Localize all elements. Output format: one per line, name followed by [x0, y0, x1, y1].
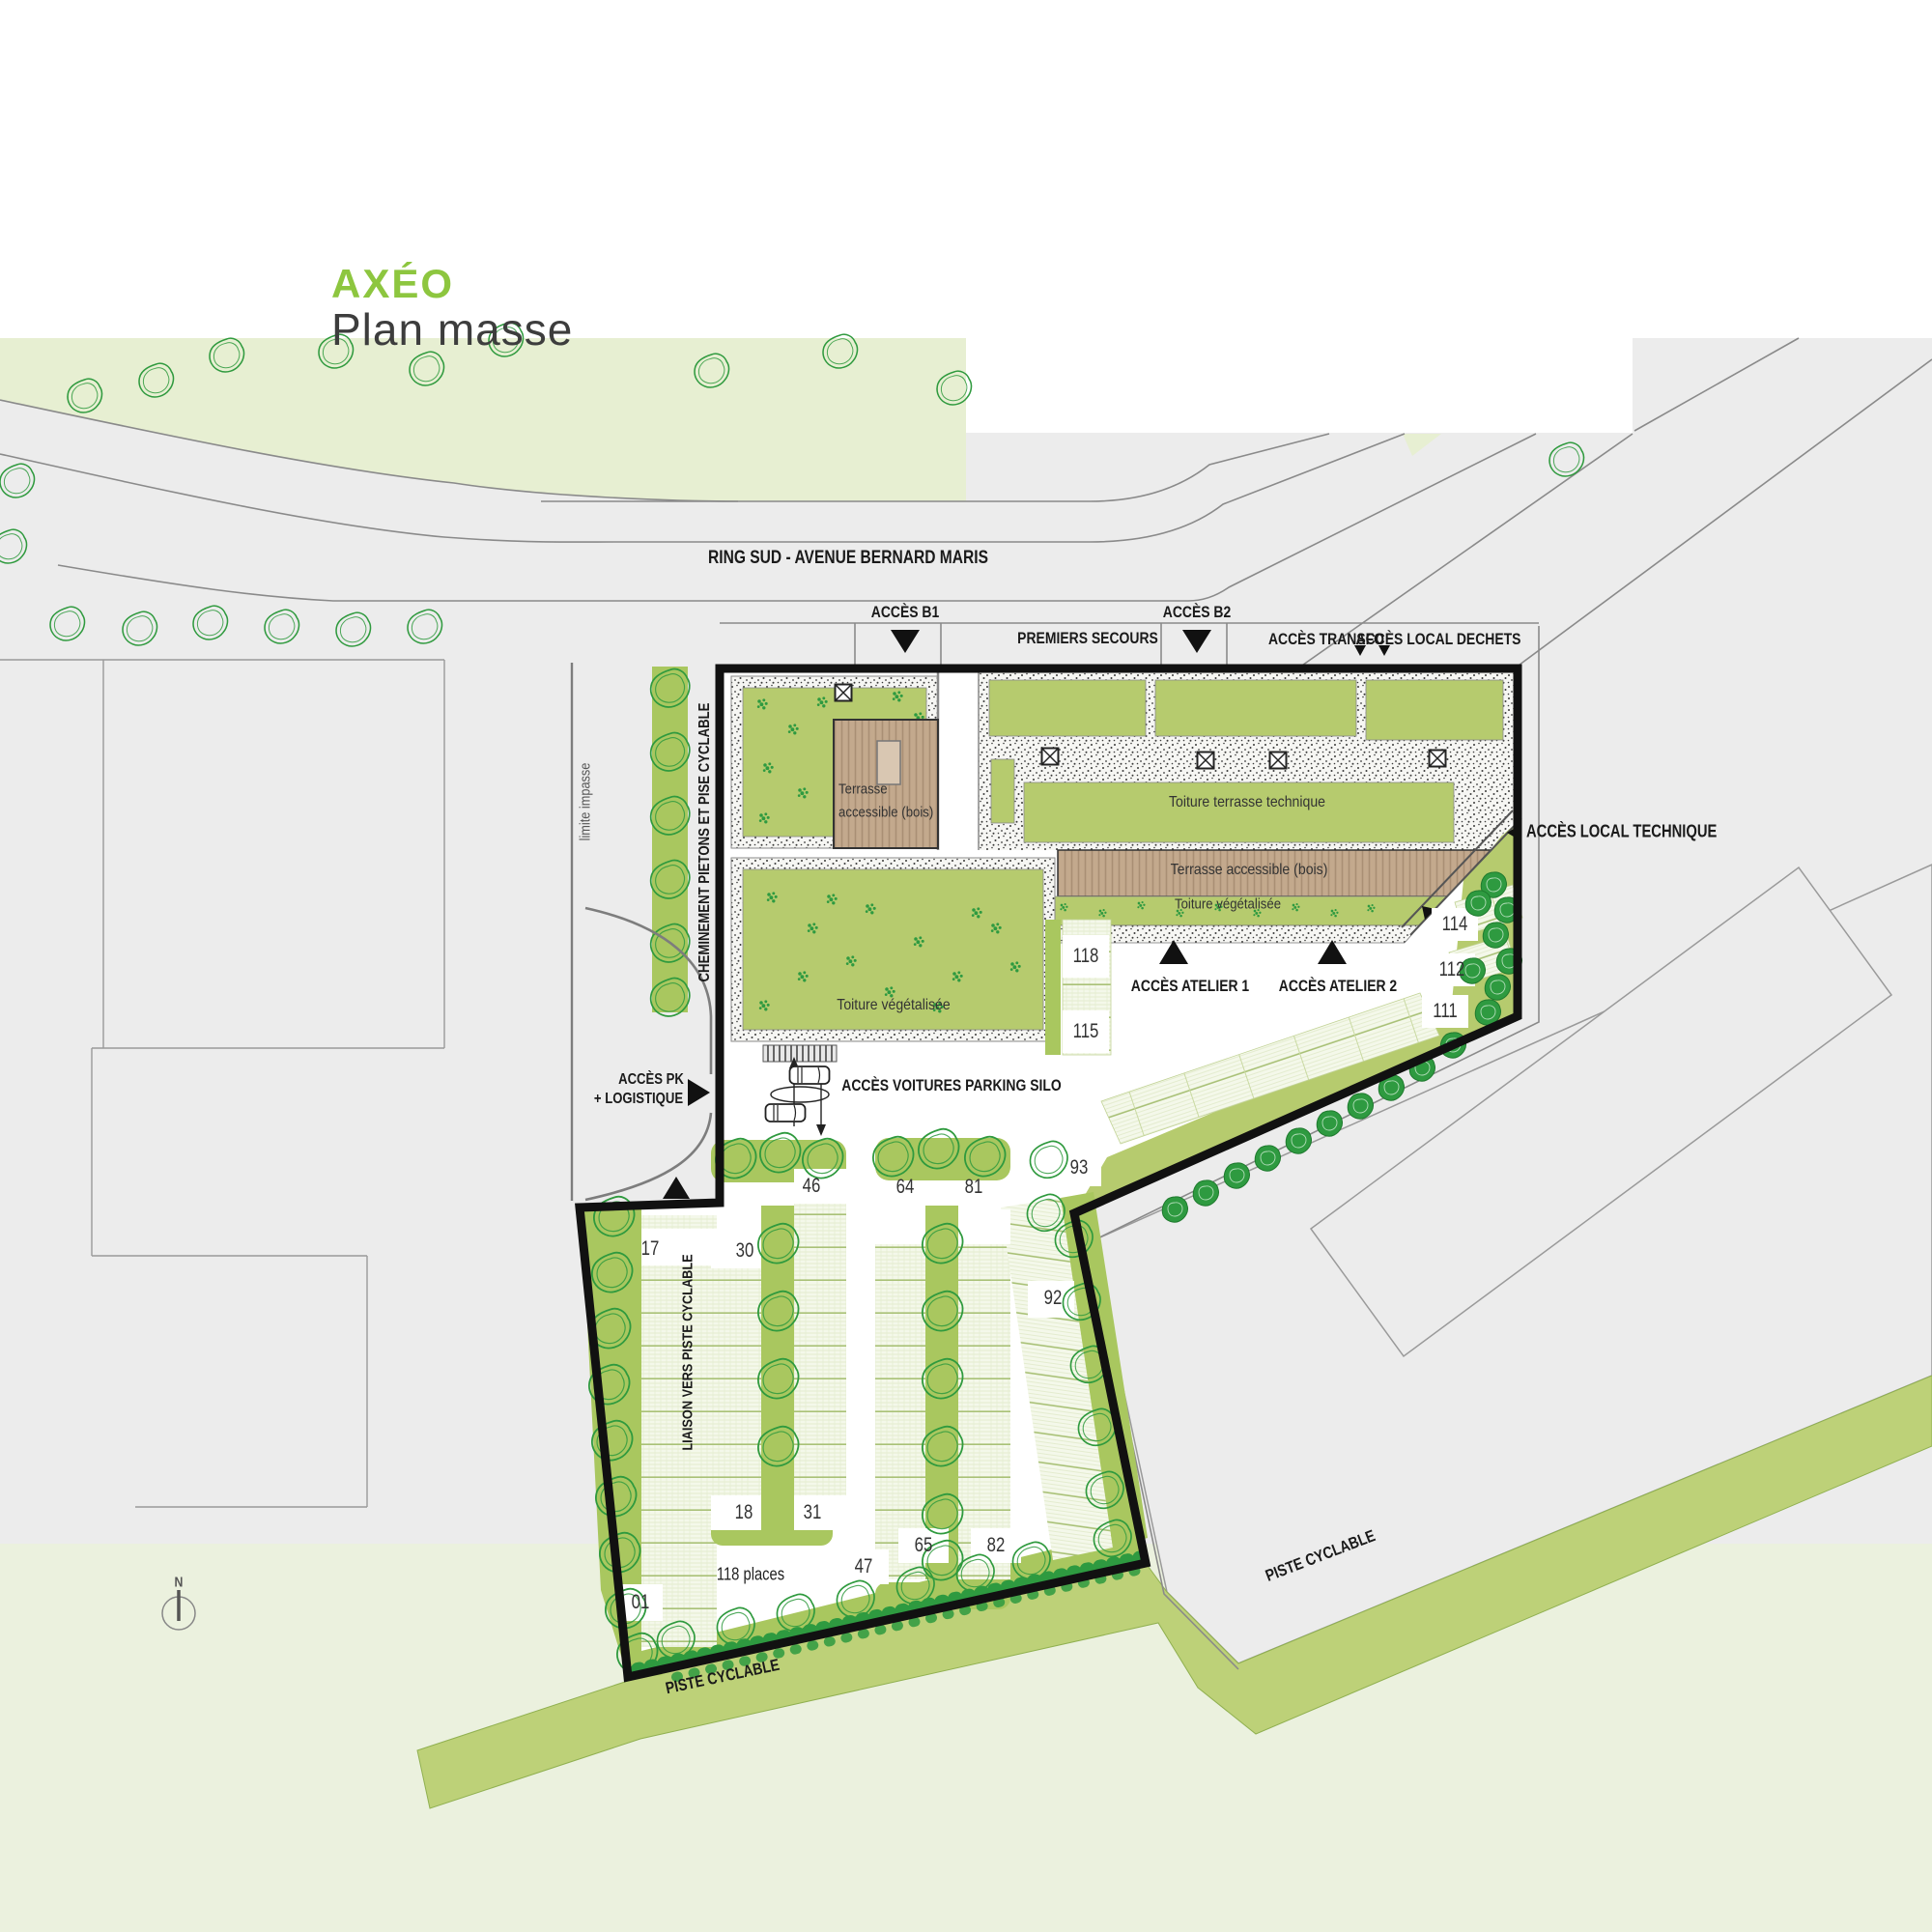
acces-b1-label: ACCÈS B1 — [871, 603, 939, 622]
limite-impasse-label: limite impasse — [578, 763, 594, 841]
spot-114: 114 — [1442, 913, 1468, 936]
plan-drawing — [0, 0, 1932, 1932]
page-title: Plan masse — [331, 305, 573, 355]
roof-hatch-icon — [836, 685, 852, 701]
spot-18: 18 — [735, 1501, 753, 1524]
spot-112: 112 — [1439, 958, 1465, 981]
roof-hatch-icon — [1198, 753, 1214, 769]
places-count-label: 118 places — [717, 1565, 784, 1585]
toiture-veg-ouest-label: Toiture végétalisée — [837, 997, 950, 1014]
toiture-veg-bande-label: Toiture végétalisée — [1175, 896, 1281, 913]
acces-voitures-label: ACCÈS VOITURES PARKING SILO — [841, 1076, 1061, 1095]
toiture-technique-label: Toiture terrasse technique — [1169, 794, 1325, 811]
spot-118: 118 — [1073, 945, 1099, 968]
acces-local-dechets-label: ACCÈS LOCAL DECHETS — [1356, 630, 1521, 649]
north-label: N — [175, 1575, 184, 1591]
spot-92: 92 — [1044, 1287, 1063, 1310]
terrasse-nord-label-line1: Terrasse — [838, 781, 888, 798]
premiers-secours-label: PREMIERS SECOURS — [1017, 629, 1158, 648]
spot-115: 115 — [1073, 1020, 1099, 1043]
roof-technique — [979, 668, 1514, 850]
project-name: AXÉO — [331, 263, 573, 305]
acces-atelier1-label: ACCÈS ATELIER 1 — [1131, 977, 1249, 996]
acces-pk-label-line1: ACCÈS PK — [618, 1071, 684, 1089]
car-icon — [766, 1104, 806, 1122]
spot-30: 30 — [736, 1239, 754, 1263]
car-icon — [790, 1066, 830, 1084]
spot-01: 01 — [632, 1591, 650, 1614]
spot-81: 81 — [965, 1176, 983, 1199]
terrasse-nord-label-line2: accessible (bois) — [838, 805, 933, 821]
cheminement-label: CHEMINEMENT PIETONS ET PISE CYCLABLE — [696, 703, 714, 982]
acces-atelier2-label: ACCÈS ATELIER 2 — [1279, 977, 1397, 996]
spot-111: 111 — [1433, 1000, 1458, 1023]
acces-b2-label: ACCÈS B2 — [1163, 603, 1231, 622]
spot-17: 17 — [641, 1237, 660, 1261]
spot-82: 82 — [987, 1534, 1006, 1557]
spot-46: 46 — [803, 1175, 821, 1198]
spot-65: 65 — [915, 1534, 933, 1557]
entrance-canopy — [763, 1045, 837, 1062]
roof-hatch-icon — [1270, 753, 1287, 769]
acces-pk-label-line2: + LOGISTIQUE — [594, 1091, 683, 1108]
roof-hatch-icon — [1042, 749, 1059, 765]
liaison-label: LIAISON VERS PISTE CYCLABLE — [680, 1254, 696, 1450]
terrasse-sud-label: Terrasse accessible (bois) — [1171, 862, 1328, 879]
spot-47: 47 — [855, 1555, 873, 1578]
site-plan: AXÉO Plan masse RING SUD - AVENUE BERNAR… — [0, 0, 1932, 1932]
street-label: RING SUD - AVENUE BERNARD MARIS — [708, 548, 988, 569]
roof-hatch-icon — [1430, 751, 1446, 767]
spot-31: 31 — [804, 1501, 822, 1524]
acces-local-technique-label: ACCÈS LOCAL TECHNIQUE — [1526, 822, 1717, 842]
spot-64: 64 — [896, 1176, 915, 1199]
spot-93: 93 — [1070, 1156, 1089, 1179]
title-block: AXÉO Plan masse — [331, 263, 573, 355]
